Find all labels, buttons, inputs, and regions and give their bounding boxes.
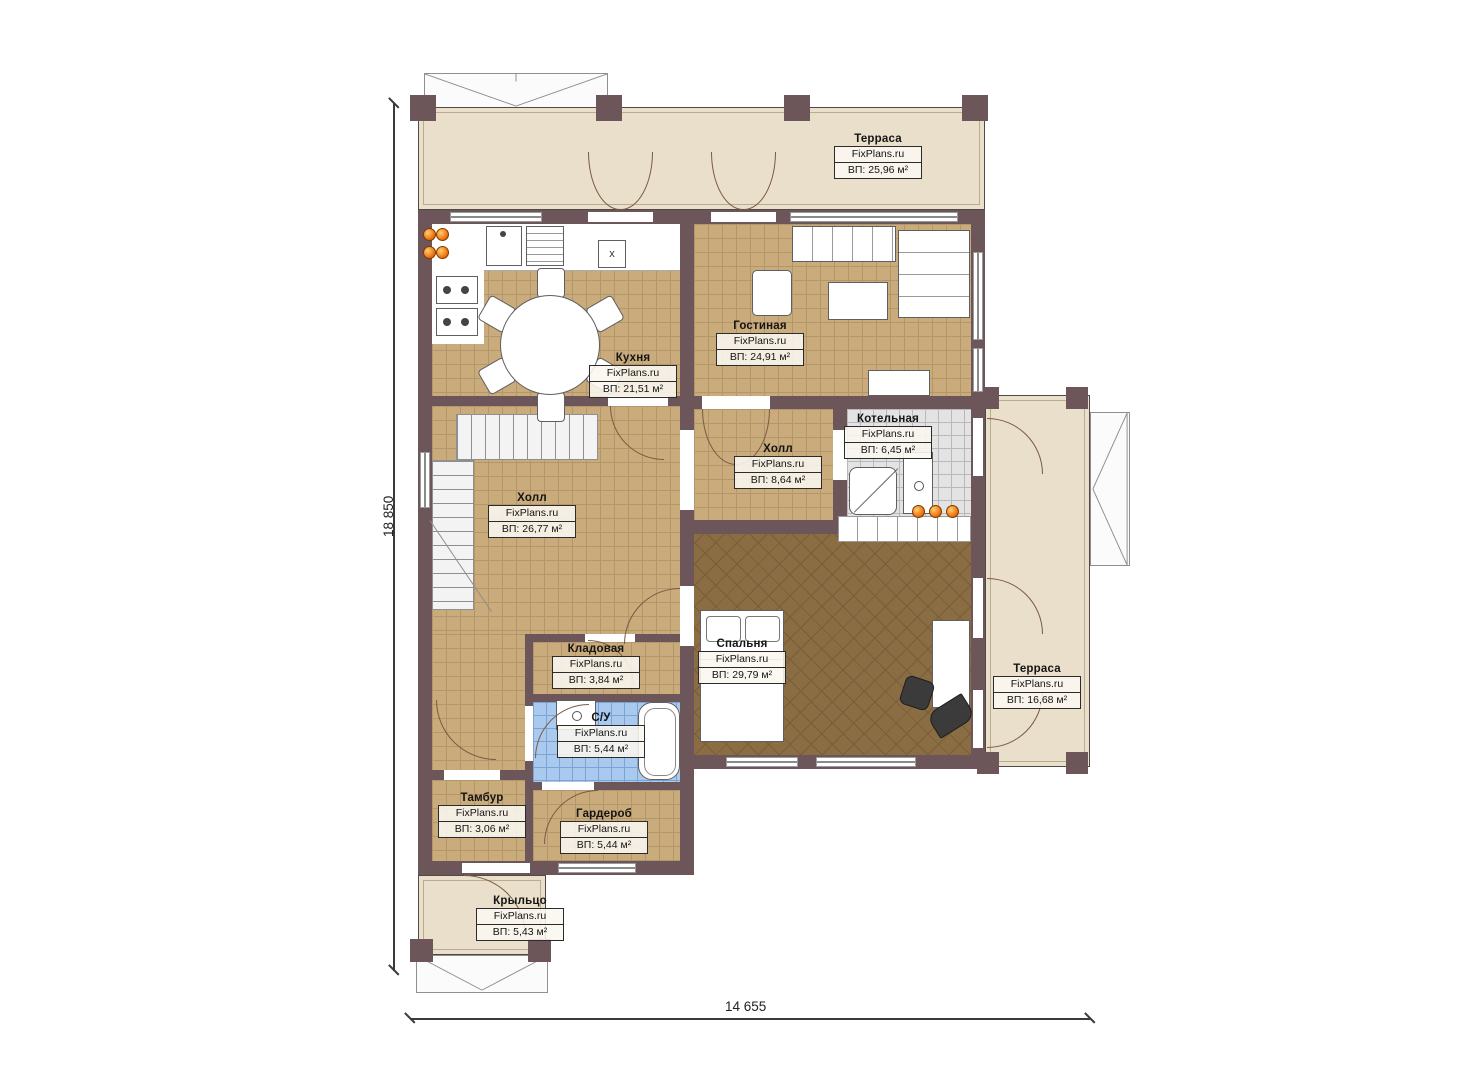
dimension-height: 18 850 bbox=[381, 496, 396, 537]
window bbox=[790, 212, 958, 222]
kitchen-appliance bbox=[436, 276, 478, 304]
radiator-icon bbox=[436, 228, 449, 241]
room-label-kitchen: Кухня FixPlans.ru ВП: 21,51 м² bbox=[589, 352, 677, 398]
shower-tray bbox=[849, 467, 897, 515]
room-name: Тамбур bbox=[461, 792, 504, 804]
dining-table bbox=[500, 295, 600, 395]
room-area: ВП: 8,64 м² bbox=[734, 473, 822, 489]
room-label-storage: Кладовая FixPlans.ru ВП: 3,84 м² bbox=[552, 643, 640, 689]
room-watermark: FixPlans.ru bbox=[488, 505, 576, 522]
room-area: ВП: 5,44 м² bbox=[557, 742, 645, 758]
room-watermark: FixPlans.ru bbox=[716, 333, 804, 350]
room-label-living: Гостиная FixPlans.ru ВП: 24,91 м² bbox=[716, 320, 804, 366]
room-label-hall-small: Холл FixPlans.ru ВП: 8,64 м² bbox=[734, 443, 822, 489]
room-area: ВП: 5,43 м² bbox=[476, 925, 564, 941]
chair bbox=[537, 268, 565, 298]
pilaster bbox=[528, 939, 551, 962]
room-area: ВП: 25,96 м² bbox=[834, 163, 922, 179]
door-opening bbox=[973, 690, 983, 748]
room-area: ВП: 6,45 м² bbox=[844, 443, 932, 459]
room-area: ВП: 21,51 м² bbox=[589, 382, 677, 398]
closet bbox=[838, 516, 971, 542]
window bbox=[973, 252, 983, 340]
room-name: Терраса bbox=[1013, 663, 1061, 675]
radiator-icon bbox=[423, 228, 436, 241]
room-name: Спальня bbox=[716, 638, 767, 650]
room-watermark: FixPlans.ru bbox=[552, 656, 640, 673]
console-table bbox=[868, 370, 930, 396]
room-name: Холл bbox=[517, 492, 547, 504]
pilaster bbox=[410, 939, 433, 962]
room-label-bedroom: Спальня FixPlans.ru ВП: 29,79 м² bbox=[698, 638, 786, 684]
desk bbox=[932, 620, 970, 708]
room-name: Кладовая bbox=[568, 643, 625, 655]
room-label-hall-main: Холл FixPlans.ru ВП: 26,77 м² bbox=[488, 492, 576, 538]
room-label-terrace-top: Терраса FixPlans.ru ВП: 25,96 м² bbox=[834, 133, 922, 179]
radiator-icon bbox=[423, 246, 436, 259]
room-area: ВП: 24,91 м² bbox=[716, 350, 804, 366]
room-name: Котельная bbox=[857, 413, 919, 425]
window bbox=[973, 348, 983, 392]
burner-icon bbox=[946, 505, 959, 518]
window bbox=[558, 863, 636, 873]
door-opening bbox=[444, 770, 500, 780]
door-opening bbox=[525, 706, 533, 761]
pilaster bbox=[1066, 752, 1088, 774]
room-name: С/У bbox=[591, 712, 610, 724]
room-watermark: FixPlans.ru bbox=[993, 676, 1081, 693]
dimension-line-horizontal bbox=[410, 1018, 1090, 1020]
door-opening bbox=[680, 430, 694, 510]
floor-plan: x Терраса FixPlans.ru ВП: 25,96 м² bbox=[0, 0, 1474, 1080]
room-name: Гардероб bbox=[576, 808, 632, 820]
room-label-bathroom: С/У FixPlans.ru ВП: 5,44 м² bbox=[557, 712, 645, 758]
radiator-icon bbox=[436, 246, 449, 259]
door-opening bbox=[702, 396, 770, 409]
window bbox=[450, 212, 542, 222]
canopy-right bbox=[1090, 412, 1130, 566]
room-label-terrace-right: Терраса FixPlans.ru ВП: 16,68 м² bbox=[993, 663, 1081, 709]
room-watermark: FixPlans.ru bbox=[438, 805, 526, 822]
window bbox=[816, 757, 916, 767]
canopy-top bbox=[424, 73, 608, 109]
window bbox=[726, 757, 798, 767]
room-label-wardrobe: Гардероб FixPlans.ru ВП: 5,44 м² bbox=[560, 808, 648, 854]
room-area: ВП: 5,44 м² bbox=[560, 838, 648, 854]
room-area: ВП: 26,77 м² bbox=[488, 522, 576, 538]
burner-icon bbox=[912, 505, 925, 518]
kitchen-appliance bbox=[436, 308, 478, 336]
dimension-width: 14 655 bbox=[725, 999, 766, 1014]
door-opening bbox=[462, 863, 530, 873]
room-area: ВП: 3,06 м² bbox=[438, 822, 526, 838]
door-opening bbox=[711, 212, 776, 222]
room-watermark: FixPlans.ru bbox=[844, 426, 932, 443]
room-label-porch: Крыльцо FixPlans.ru ВП: 5,43 м² bbox=[476, 895, 564, 941]
door-opening bbox=[973, 418, 983, 476]
extractor-fan-marker: x bbox=[598, 240, 626, 268]
room-watermark: FixPlans.ru bbox=[560, 821, 648, 838]
burner-icon bbox=[929, 505, 942, 518]
pilaster bbox=[596, 95, 622, 121]
room-name: Крыльцо bbox=[493, 895, 547, 907]
dimension-line-vertical bbox=[393, 103, 395, 971]
room-area: ВП: 16,68 м² bbox=[993, 693, 1081, 709]
sofa bbox=[792, 226, 896, 262]
room-watermark: FixPlans.ru bbox=[589, 365, 677, 382]
chair bbox=[537, 392, 565, 422]
room-watermark: FixPlans.ru bbox=[734, 456, 822, 473]
door-opening bbox=[588, 212, 653, 222]
room-name: Терраса bbox=[854, 133, 902, 145]
window bbox=[420, 452, 430, 508]
pilaster bbox=[784, 95, 810, 121]
room-watermark: FixPlans.ru bbox=[698, 651, 786, 668]
room-area: ВП: 3,84 м² bbox=[552, 673, 640, 689]
pilaster bbox=[410, 95, 436, 121]
door-opening bbox=[973, 578, 983, 638]
room-name: Холл bbox=[763, 443, 793, 455]
room-watermark: FixPlans.ru bbox=[834, 146, 922, 163]
kitchen-stove bbox=[526, 226, 564, 266]
door-opening bbox=[680, 586, 694, 646]
room-area: ВП: 29,79 м² bbox=[698, 668, 786, 684]
coffee-table bbox=[828, 282, 888, 320]
room-name: Кухня bbox=[616, 352, 651, 364]
room-label-boiler: Котельная FixPlans.ru ВП: 6,45 м² bbox=[844, 413, 932, 459]
room-watermark: FixPlans.ru bbox=[557, 725, 645, 742]
kitchen-sink bbox=[486, 226, 522, 266]
room-label-vestibule: Тамбур FixPlans.ru ВП: 3,06 м² bbox=[438, 792, 526, 838]
pilaster bbox=[977, 752, 999, 774]
pilaster bbox=[962, 95, 988, 121]
room-watermark: FixPlans.ru bbox=[476, 908, 564, 925]
armchair bbox=[752, 270, 792, 316]
sofa bbox=[898, 230, 970, 318]
stairs-upper-flight bbox=[456, 414, 598, 460]
pilaster bbox=[1066, 387, 1088, 409]
room-name: Гостиная bbox=[733, 320, 787, 332]
door-opening bbox=[542, 782, 594, 790]
